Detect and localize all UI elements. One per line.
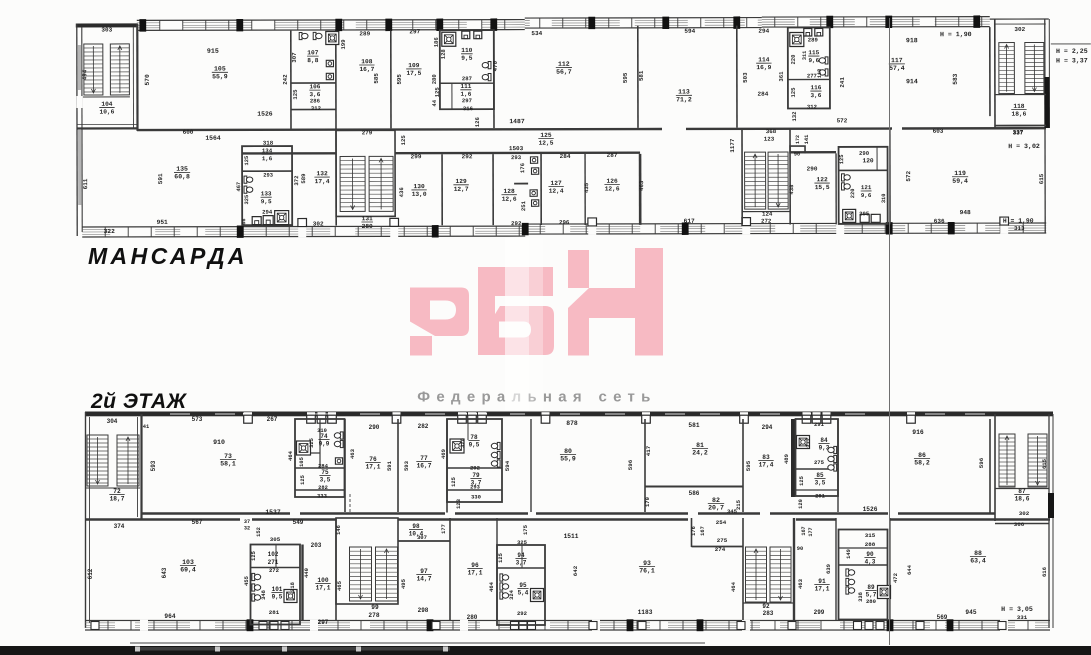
svg-text:573: 573 — [192, 416, 203, 423]
svg-text:3,6: 3,6 — [811, 92, 822, 99]
svg-text:132: 132 — [791, 111, 798, 122]
svg-text:267: 267 — [267, 416, 278, 423]
svg-text:435: 435 — [583, 182, 590, 193]
svg-text:644: 644 — [906, 564, 913, 575]
svg-text:125: 125 — [300, 475, 306, 485]
svg-text:125: 125 — [244, 156, 250, 166]
svg-text:594: 594 — [684, 28, 695, 35]
svg-text:71,2: 71,2 — [676, 96, 692, 103]
svg-text:280: 280 — [431, 74, 438, 85]
svg-text:272: 272 — [269, 567, 280, 574]
svg-text:105: 105 — [214, 66, 226, 73]
svg-text:103: 103 — [182, 559, 194, 566]
svg-text:13,0: 13,0 — [412, 191, 427, 198]
svg-text:325: 325 — [517, 539, 528, 546]
svg-text:417: 417 — [645, 445, 652, 456]
svg-text:81: 81 — [696, 442, 704, 449]
svg-text:366: 366 — [1014, 521, 1025, 528]
svg-text:297: 297 — [462, 97, 472, 104]
svg-text:611: 611 — [82, 178, 89, 189]
svg-text:12,5: 12,5 — [539, 140, 554, 147]
svg-text:123: 123 — [455, 498, 462, 509]
svg-text:125: 125 — [251, 551, 257, 561]
svg-text:331: 331 — [1017, 614, 1028, 621]
svg-text:615: 615 — [1041, 458, 1048, 469]
svg-text:73: 73 — [224, 453, 232, 460]
svg-text:272: 272 — [761, 218, 772, 225]
svg-text:289: 289 — [808, 36, 819, 43]
svg-text:280: 280 — [362, 223, 373, 230]
svg-text:878: 878 — [566, 420, 578, 427]
svg-text:436: 436 — [398, 187, 405, 198]
svg-text:H = 1,90: H = 1,90 — [940, 31, 972, 38]
svg-text:3,5: 3,5 — [815, 480, 826, 487]
svg-text:284: 284 — [318, 463, 329, 470]
svg-text:104: 104 — [101, 101, 112, 108]
svg-text:149: 149 — [846, 549, 852, 559]
svg-text:17,4: 17,4 — [759, 462, 774, 469]
svg-text:463: 463 — [797, 578, 804, 589]
svg-text:591: 591 — [157, 173, 164, 184]
svg-text:114: 114 — [758, 56, 769, 63]
svg-text:495: 495 — [400, 578, 407, 589]
svg-text:595: 595 — [396, 74, 403, 85]
svg-text:76,1: 76,1 — [639, 568, 655, 575]
svg-text:585: 585 — [373, 73, 380, 84]
svg-text:251: 251 — [520, 200, 527, 211]
svg-text:948: 948 — [960, 209, 971, 216]
svg-text:H = 3,02: H = 3,02 — [1008, 143, 1040, 150]
svg-text:H = 2,25: H = 2,25 — [1056, 48, 1088, 55]
svg-text:75: 75 — [321, 469, 329, 476]
svg-text:572: 572 — [905, 170, 912, 181]
svg-text:549: 549 — [293, 519, 304, 526]
svg-text:130: 130 — [414, 183, 425, 190]
svg-text:586: 586 — [689, 490, 700, 497]
svg-text:60,8: 60,8 — [174, 173, 190, 180]
svg-text:503: 503 — [742, 72, 749, 83]
svg-text:121: 121 — [861, 184, 872, 191]
svg-text:302: 302 — [1019, 510, 1030, 517]
svg-text:280: 280 — [467, 614, 478, 621]
svg-text:305: 305 — [270, 536, 281, 543]
svg-text:918: 918 — [906, 37, 918, 44]
svg-text:282: 282 — [418, 423, 429, 430]
svg-text:313: 313 — [1014, 225, 1025, 232]
svg-text:17,5: 17,5 — [406, 70, 421, 77]
svg-text:106: 106 — [309, 83, 320, 90]
svg-text:58,2: 58,2 — [914, 460, 930, 467]
svg-text:951: 951 — [157, 219, 168, 226]
svg-text:299: 299 — [814, 609, 825, 616]
svg-text:8,8: 8,8 — [307, 57, 318, 64]
svg-text:292: 292 — [511, 220, 522, 227]
svg-text:172: 172 — [795, 135, 801, 144]
svg-text:1183: 1183 — [638, 609, 653, 616]
svg-text:293: 293 — [470, 485, 480, 491]
svg-text:9,6: 9,6 — [808, 57, 819, 64]
svg-text:125: 125 — [540, 132, 551, 139]
svg-text:125: 125 — [799, 476, 805, 486]
svg-text:440: 440 — [303, 567, 310, 578]
svg-text:94: 94 — [517, 552, 525, 559]
svg-text:325: 325 — [244, 195, 250, 205]
svg-text:120: 120 — [862, 157, 873, 164]
svg-text:101: 101 — [272, 586, 283, 593]
svg-text:332: 332 — [806, 438, 812, 448]
svg-text:125: 125 — [790, 87, 797, 98]
svg-text:1177: 1177 — [729, 138, 736, 152]
svg-text:125: 125 — [292, 89, 299, 100]
svg-text:324: 324 — [509, 589, 515, 599]
svg-text:345: 345 — [727, 508, 738, 515]
svg-text:218: 218 — [290, 582, 296, 592]
svg-text:177: 177 — [441, 524, 447, 534]
svg-text:330: 330 — [471, 494, 482, 501]
svg-text:274: 274 — [715, 546, 726, 553]
svg-text:170: 170 — [644, 496, 651, 507]
svg-text:128: 128 — [504, 188, 515, 195]
svg-text:596: 596 — [627, 459, 634, 470]
svg-text:17,1: 17,1 — [316, 585, 331, 592]
svg-text:572: 572 — [837, 117, 848, 124]
svg-text:1564: 1564 — [205, 135, 221, 142]
svg-text:289: 289 — [359, 30, 370, 37]
svg-text:277: 277 — [807, 72, 817, 79]
svg-text:915: 915 — [207, 48, 219, 55]
svg-text:583: 583 — [952, 73, 959, 84]
svg-text:18,6: 18,6 — [1015, 496, 1030, 503]
svg-text:591: 591 — [386, 460, 393, 471]
svg-text:37: 37 — [244, 519, 250, 525]
svg-text:176: 176 — [519, 162, 526, 173]
svg-text:133: 133 — [261, 190, 272, 197]
svg-text:464: 464 — [489, 581, 495, 591]
svg-text:464: 464 — [730, 581, 737, 592]
svg-text:910: 910 — [213, 439, 225, 446]
svg-text:316: 316 — [463, 105, 474, 112]
svg-text:275: 275 — [717, 537, 728, 544]
svg-text:125: 125 — [400, 135, 407, 146]
svg-text:18,6: 18,6 — [1012, 111, 1027, 118]
svg-text:281: 281 — [269, 609, 280, 616]
svg-text:291: 291 — [814, 421, 825, 428]
svg-text:57,4: 57,4 — [889, 65, 905, 72]
svg-text:595: 595 — [622, 72, 629, 83]
svg-text:87: 87 — [1018, 488, 1026, 495]
svg-text:311: 311 — [802, 51, 808, 60]
svg-text:5,4: 5,4 — [518, 590, 529, 597]
svg-text:569: 569 — [937, 614, 948, 621]
svg-text:125: 125 — [451, 477, 457, 487]
svg-text:241: 241 — [839, 77, 846, 88]
svg-text:312: 312 — [311, 105, 322, 112]
svg-text:338: 338 — [858, 592, 864, 602]
svg-text:581: 581 — [688, 422, 699, 429]
svg-text:303: 303 — [101, 26, 112, 33]
svg-text:9,3: 9,3 — [819, 445, 830, 452]
svg-text:1503: 1503 — [509, 145, 524, 152]
svg-text:617: 617 — [684, 218, 695, 225]
svg-text:109: 109 — [408, 62, 419, 69]
svg-text:91: 91 — [818, 578, 826, 585]
svg-text:93: 93 — [643, 560, 651, 567]
svg-text:113: 113 — [678, 89, 690, 96]
svg-text:315: 315 — [865, 532, 876, 539]
svg-text:16,7: 16,7 — [417, 463, 432, 470]
svg-text:372: 372 — [293, 175, 300, 186]
svg-text:639: 639 — [825, 563, 832, 574]
svg-text:642: 642 — [572, 565, 579, 576]
svg-text:176: 176 — [691, 526, 697, 536]
svg-text:H = 3,05: H = 3,05 — [1001, 606, 1033, 613]
svg-text:118: 118 — [1013, 103, 1024, 110]
svg-text:302: 302 — [1014, 26, 1025, 33]
svg-text:20,7: 20,7 — [708, 505, 724, 512]
svg-text:581: 581 — [638, 70, 645, 81]
svg-text:325: 325 — [309, 438, 315, 448]
svg-text:115: 115 — [808, 49, 819, 56]
svg-text:284: 284 — [560, 153, 571, 160]
svg-text:92: 92 — [762, 603, 770, 610]
svg-text:127: 127 — [551, 180, 562, 187]
svg-text:100: 100 — [317, 577, 328, 584]
svg-text:304: 304 — [107, 418, 118, 425]
svg-text:167: 167 — [700, 526, 706, 536]
svg-text:220: 220 — [850, 189, 856, 199]
svg-text:469: 469 — [440, 448, 447, 459]
svg-text:288: 288 — [865, 541, 876, 548]
svg-text:17,1: 17,1 — [366, 464, 381, 471]
svg-text:297: 297 — [318, 619, 329, 626]
svg-text:85: 85 — [816, 472, 824, 479]
svg-text:464: 464 — [288, 450, 294, 460]
svg-text:472: 472 — [892, 572, 899, 583]
svg-text:294: 294 — [758, 28, 769, 35]
svg-text:333: 333 — [317, 493, 328, 500]
svg-text:318: 318 — [263, 140, 274, 147]
svg-text:290: 290 — [859, 150, 870, 157]
svg-text:167: 167 — [801, 526, 807, 535]
svg-text:146: 146 — [336, 525, 342, 535]
svg-text:467: 467 — [236, 182, 242, 192]
svg-text:H = 1,90: H = 1,90 — [1003, 218, 1034, 225]
svg-text:290: 290 — [807, 165, 818, 172]
svg-text:89: 89 — [867, 584, 875, 591]
svg-text:1487: 1487 — [509, 118, 525, 125]
svg-text:595: 595 — [745, 460, 752, 471]
svg-text:124: 124 — [762, 211, 773, 218]
svg-text:9,5: 9,5 — [469, 442, 480, 449]
svg-text:90: 90 — [794, 152, 800, 158]
svg-text:4,3: 4,3 — [865, 559, 876, 566]
svg-text:9,6: 9,6 — [861, 192, 872, 199]
svg-text:55,9: 55,9 — [212, 73, 228, 80]
svg-text:636: 636 — [934, 218, 945, 225]
svg-text:177: 177 — [808, 527, 814, 536]
svg-text:128: 128 — [440, 49, 447, 60]
svg-text:МАНСАРДА: МАНСАРДА — [88, 243, 248, 269]
svg-text:615: 615 — [1038, 173, 1045, 184]
svg-text:279: 279 — [362, 129, 373, 136]
svg-text:292: 292 — [462, 153, 473, 160]
svg-text:567: 567 — [192, 519, 203, 526]
svg-text:116: 116 — [810, 84, 821, 91]
svg-text:914: 914 — [906, 78, 918, 85]
svg-text:99: 99 — [371, 604, 379, 611]
svg-text:307: 307 — [291, 52, 298, 63]
svg-text:18,7: 18,7 — [110, 496, 125, 503]
svg-text:294: 294 — [262, 209, 273, 216]
svg-text:284: 284 — [758, 91, 769, 98]
svg-text:282: 282 — [318, 485, 328, 491]
svg-text:9,5: 9,5 — [261, 198, 272, 205]
svg-text:9,5: 9,5 — [461, 55, 472, 62]
svg-text:3,7: 3,7 — [516, 560, 527, 567]
svg-text:112: 112 — [558, 61, 570, 68]
svg-text:16,9: 16,9 — [756, 64, 771, 71]
svg-text:108: 108 — [361, 58, 372, 65]
svg-text:293: 293 — [511, 154, 522, 161]
svg-text:120: 120 — [798, 499, 804, 509]
svg-text:290: 290 — [369, 424, 380, 431]
svg-text:1526: 1526 — [257, 111, 273, 118]
svg-text:465: 465 — [336, 580, 343, 591]
svg-text:125: 125 — [498, 553, 504, 563]
svg-text:111: 111 — [460, 83, 471, 90]
svg-text:964: 964 — [164, 613, 175, 620]
svg-text:293: 293 — [263, 173, 273, 179]
svg-text:14,7: 14,7 — [417, 576, 432, 583]
svg-text:H = 3,37: H = 3,37 — [1056, 57, 1088, 64]
svg-text:63,4: 63,4 — [970, 558, 986, 565]
svg-text:489: 489 — [783, 453, 790, 464]
svg-text:134: 134 — [262, 147, 273, 154]
svg-text:455: 455 — [244, 576, 250, 586]
svg-text:294: 294 — [762, 424, 773, 431]
svg-text:322: 322 — [104, 228, 115, 235]
svg-text:945: 945 — [965, 609, 976, 616]
svg-text:603: 603 — [933, 128, 944, 135]
svg-text:470: 470 — [492, 60, 499, 71]
svg-text:1511: 1511 — [564, 533, 579, 540]
svg-text:123: 123 — [764, 136, 775, 143]
svg-text:88: 88 — [974, 550, 982, 557]
svg-text:534: 534 — [531, 30, 542, 37]
svg-text:98: 98 — [412, 523, 420, 530]
svg-text:296: 296 — [559, 219, 570, 226]
svg-text:593: 593 — [150, 460, 157, 471]
svg-text:287: 287 — [607, 152, 618, 159]
svg-text:24,2: 24,2 — [692, 450, 708, 457]
svg-text:118: 118 — [817, 69, 823, 78]
svg-text:152: 152 — [256, 527, 262, 537]
svg-text:374: 374 — [114, 523, 125, 530]
svg-text:616: 616 — [1041, 566, 1048, 577]
svg-text:298: 298 — [418, 607, 429, 614]
svg-text:132: 132 — [317, 170, 328, 177]
svg-text:119: 119 — [954, 170, 966, 177]
svg-text:328: 328 — [460, 438, 466, 448]
svg-text:58,1: 58,1 — [220, 461, 236, 468]
svg-text:600: 600 — [183, 129, 194, 136]
svg-text:291: 291 — [815, 494, 825, 500]
svg-text:286: 286 — [310, 98, 321, 105]
svg-text:307: 307 — [417, 534, 427, 541]
svg-text:66: 66 — [241, 219, 247, 225]
svg-text:1,6: 1,6 — [262, 155, 273, 162]
svg-text:3,5: 3,5 — [320, 477, 331, 484]
svg-text:1537: 1537 — [265, 509, 281, 516]
svg-text:570: 570 — [144, 74, 151, 85]
svg-text:78: 78 — [470, 434, 478, 441]
svg-text:292: 292 — [517, 610, 528, 617]
svg-text:361: 361 — [778, 71, 785, 82]
svg-text:2й ЭТАЖ: 2й ЭТАЖ — [90, 390, 188, 413]
svg-text:44: 44 — [431, 99, 438, 106]
svg-text:643: 643 — [161, 567, 168, 578]
svg-text:125: 125 — [434, 87, 441, 98]
svg-text:199: 199 — [340, 39, 347, 50]
svg-text:9,9: 9,9 — [319, 441, 330, 448]
svg-text:82: 82 — [712, 497, 720, 504]
svg-text:86: 86 — [918, 452, 926, 459]
svg-text:97: 97 — [420, 568, 428, 575]
svg-text:594: 594 — [504, 460, 511, 471]
svg-text:126: 126 — [607, 178, 618, 185]
svg-text:494: 494 — [81, 69, 88, 80]
svg-text:122: 122 — [817, 176, 828, 183]
svg-text:593: 593 — [403, 460, 410, 471]
svg-text:254: 254 — [716, 519, 727, 526]
svg-text:9,5: 9,5 — [272, 594, 283, 601]
svg-text:105: 105 — [299, 457, 305, 467]
svg-text:10,6: 10,6 — [100, 109, 115, 116]
svg-text:17,1: 17,1 — [468, 570, 483, 577]
svg-text:69,4: 69,4 — [180, 567, 196, 574]
svg-text:278: 278 — [368, 612, 379, 619]
svg-text:299: 299 — [411, 153, 422, 160]
svg-text:463: 463 — [349, 448, 356, 459]
svg-text:310: 310 — [881, 193, 887, 203]
svg-text:84: 84 — [820, 437, 828, 444]
svg-text:135: 135 — [176, 166, 188, 173]
svg-text:17,4: 17,4 — [315, 178, 330, 185]
svg-text:55,9: 55,9 — [560, 456, 576, 463]
svg-text:126: 126 — [474, 116, 481, 127]
svg-text:117: 117 — [891, 57, 903, 64]
svg-text:131: 131 — [362, 215, 373, 222]
svg-text:15,5: 15,5 — [815, 184, 830, 191]
svg-text:90: 90 — [866, 551, 874, 558]
svg-text:242: 242 — [282, 74, 289, 85]
svg-text:141: 141 — [804, 135, 810, 145]
svg-text:59,4: 59,4 — [952, 178, 968, 185]
svg-text:271: 271 — [268, 559, 279, 566]
svg-text:186: 186 — [433, 37, 440, 48]
svg-text:90: 90 — [797, 546, 803, 552]
svg-text:589: 589 — [300, 173, 307, 184]
svg-text:612: 612 — [87, 568, 94, 579]
svg-text:16,7: 16,7 — [359, 66, 374, 73]
svg-text:129: 129 — [456, 178, 467, 185]
svg-text:96: 96 — [471, 562, 479, 569]
svg-text:125: 125 — [839, 155, 845, 165]
svg-text:292: 292 — [470, 465, 481, 472]
svg-text:102: 102 — [268, 551, 279, 558]
svg-text:32: 32 — [244, 526, 250, 532]
svg-text:80: 80 — [564, 448, 572, 455]
